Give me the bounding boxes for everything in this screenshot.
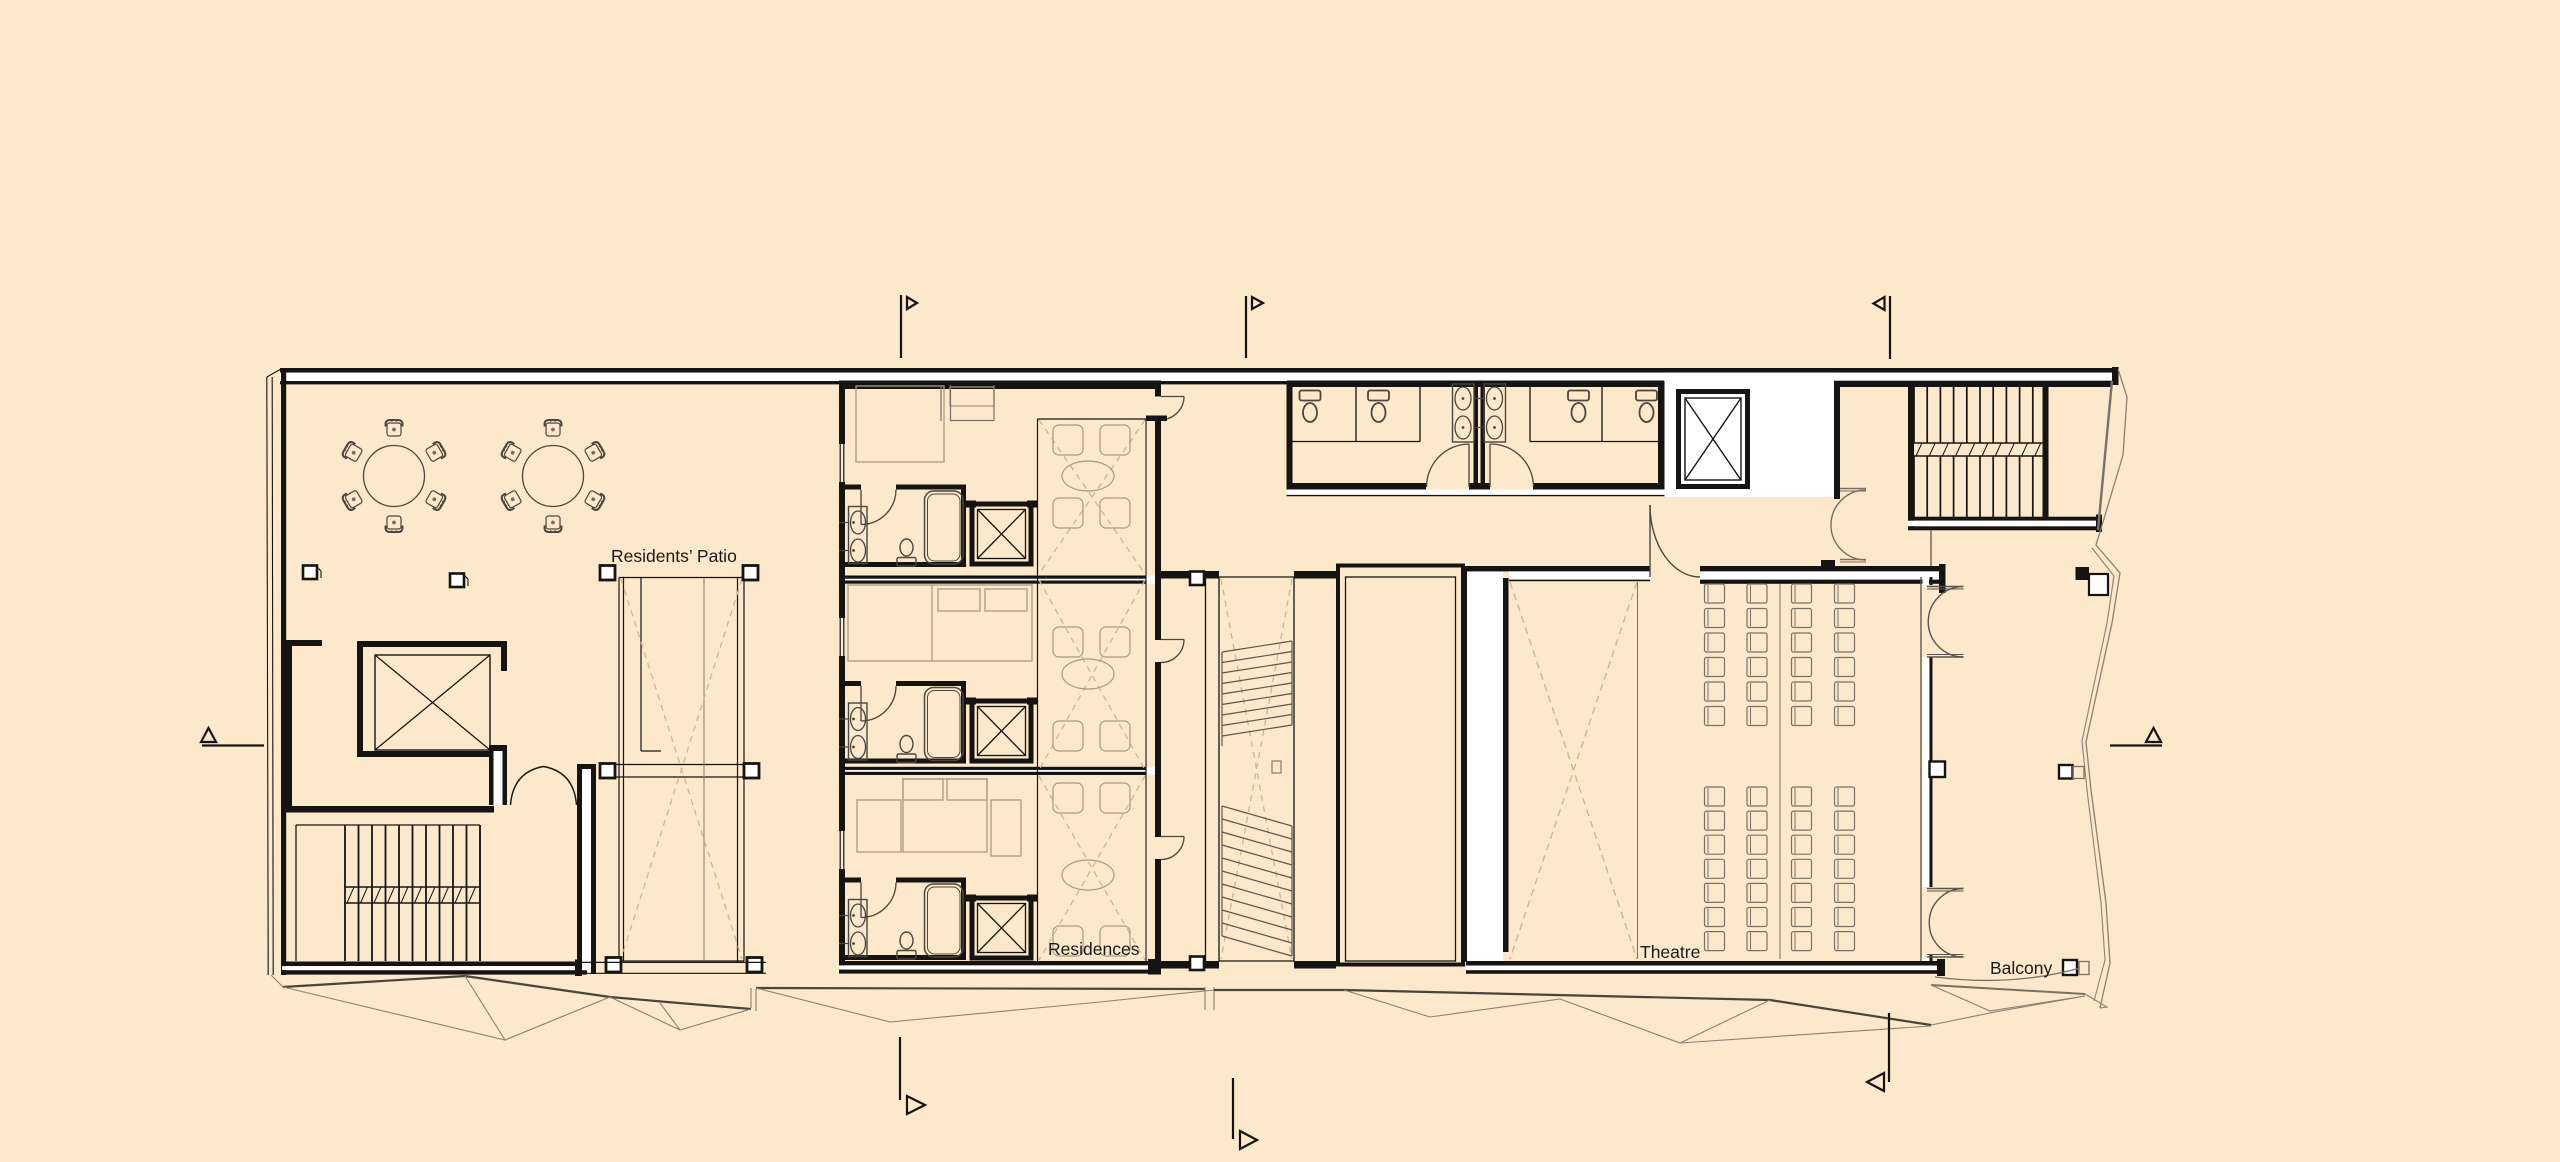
svg-text:Residences: Residences (1048, 939, 1140, 959)
svg-text:Balcony: Balcony (1990, 958, 2053, 978)
svg-text:Residents’ Patio: Residents’ Patio (611, 546, 737, 566)
svg-text:Theatre: Theatre (1640, 942, 1700, 962)
